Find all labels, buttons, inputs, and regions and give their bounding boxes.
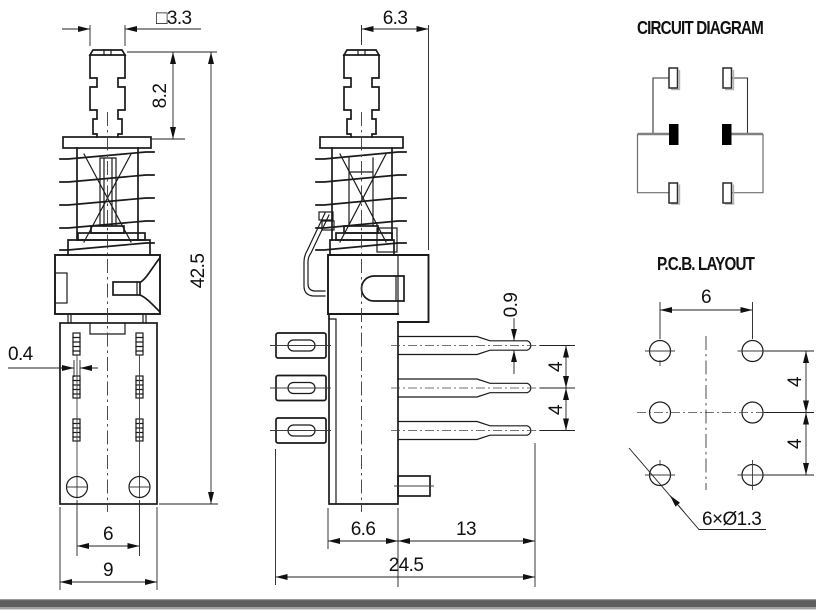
dim-label-pin-pitch-a: 4 (546, 361, 567, 372)
mount-holes-front (66, 477, 151, 498)
pcb-hole-callout-label: 6×Ø1.3 (702, 509, 761, 530)
technical-drawing-page: □3.3 8.2 42.5 0.4 6 9 (0, 0, 816, 615)
switch-drawing-canvas: □3.3 8.2 42.5 0.4 6 9 (0, 0, 816, 615)
dim-pcb-row-pitch: 4 4 (764, 351, 814, 475)
pcb-layout-title: P.C.B. LAYOUT (657, 254, 755, 274)
side-view-drawing: 6.3 0.9 4 4 6.6 13 24.5 (270, 8, 575, 587)
dim-label-plunger-height: 8.2 (150, 84, 171, 109)
pcb-hole-callout: 6×Ø1.3 (629, 448, 766, 530)
dim-label-pin-pitch-b: 4 (546, 404, 567, 415)
circuit-diagram: CIRCUIT DIAGRAM (637, 18, 763, 204)
dim-pin-tip: 0.9 (501, 293, 522, 374)
dim-label-pcb-row-pitch-a: 4 (785, 376, 806, 387)
dim-label-square: □3.3 (156, 8, 192, 29)
dim-plunger-height: 8.2 (127, 52, 217, 139)
pcb-layout: P.C.B. LAYOUT 6 4 4 6×Ø1.3 (629, 254, 814, 530)
terminals-front (73, 333, 143, 499)
dim-body-width: 9 (60, 507, 157, 590)
dim-label-pcb-row-pitch-b: 4 (785, 438, 806, 449)
dim-label-hole-spacing-front: 6 (103, 524, 113, 545)
spring-front (60, 148, 154, 255)
dim-label-pin-length: 13 (456, 519, 476, 540)
dim-total-height: 42.5 (159, 52, 218, 504)
pcb-holes (637, 336, 789, 490)
dim-terminal-thickness: 0.4 (8, 344, 98, 377)
dim-square-3-3: □3.3 (62, 8, 201, 46)
dim-label-body-width: 9 (103, 560, 113, 581)
base-side (329, 314, 434, 504)
flange-front (63, 137, 151, 148)
dim-total-depth: 24.5 (276, 449, 536, 585)
dim-label-pcb-col-spacing: 6 (701, 287, 711, 308)
dim-label-terminal-thickness: 0.4 (8, 344, 34, 365)
footer-divider-bar (0, 600, 816, 610)
dim-pin-pitch: 4 4 (540, 346, 575, 431)
circuit-pole-2 (722, 68, 763, 204)
spring-side (316, 148, 406, 255)
pcb-pins-side (391, 337, 541, 440)
frame-side (328, 255, 429, 322)
dim-label-total-height: 42.5 (188, 254, 209, 289)
circuit-pole-1 (638, 68, 680, 204)
dim-base-depth: 6.6 (328, 508, 398, 587)
dim-label-top-depth: 6.3 (383, 8, 408, 29)
dim-label-pin-tip: 0.9 (501, 293, 522, 318)
dim-label-total-depth: 24.5 (389, 555, 424, 576)
dim-label-base-depth: 6.6 (351, 519, 376, 540)
dim-pcb-col-spacing: 6 (660, 287, 753, 339)
solder-lugs-side (270, 333, 331, 443)
dim-hole-spacing-front: 6 (77, 500, 140, 556)
circuit-diagram-title: CIRCUIT DIAGRAM (637, 18, 763, 38)
front-view-drawing: □3.3 8.2 42.5 0.4 6 9 (8, 8, 218, 590)
